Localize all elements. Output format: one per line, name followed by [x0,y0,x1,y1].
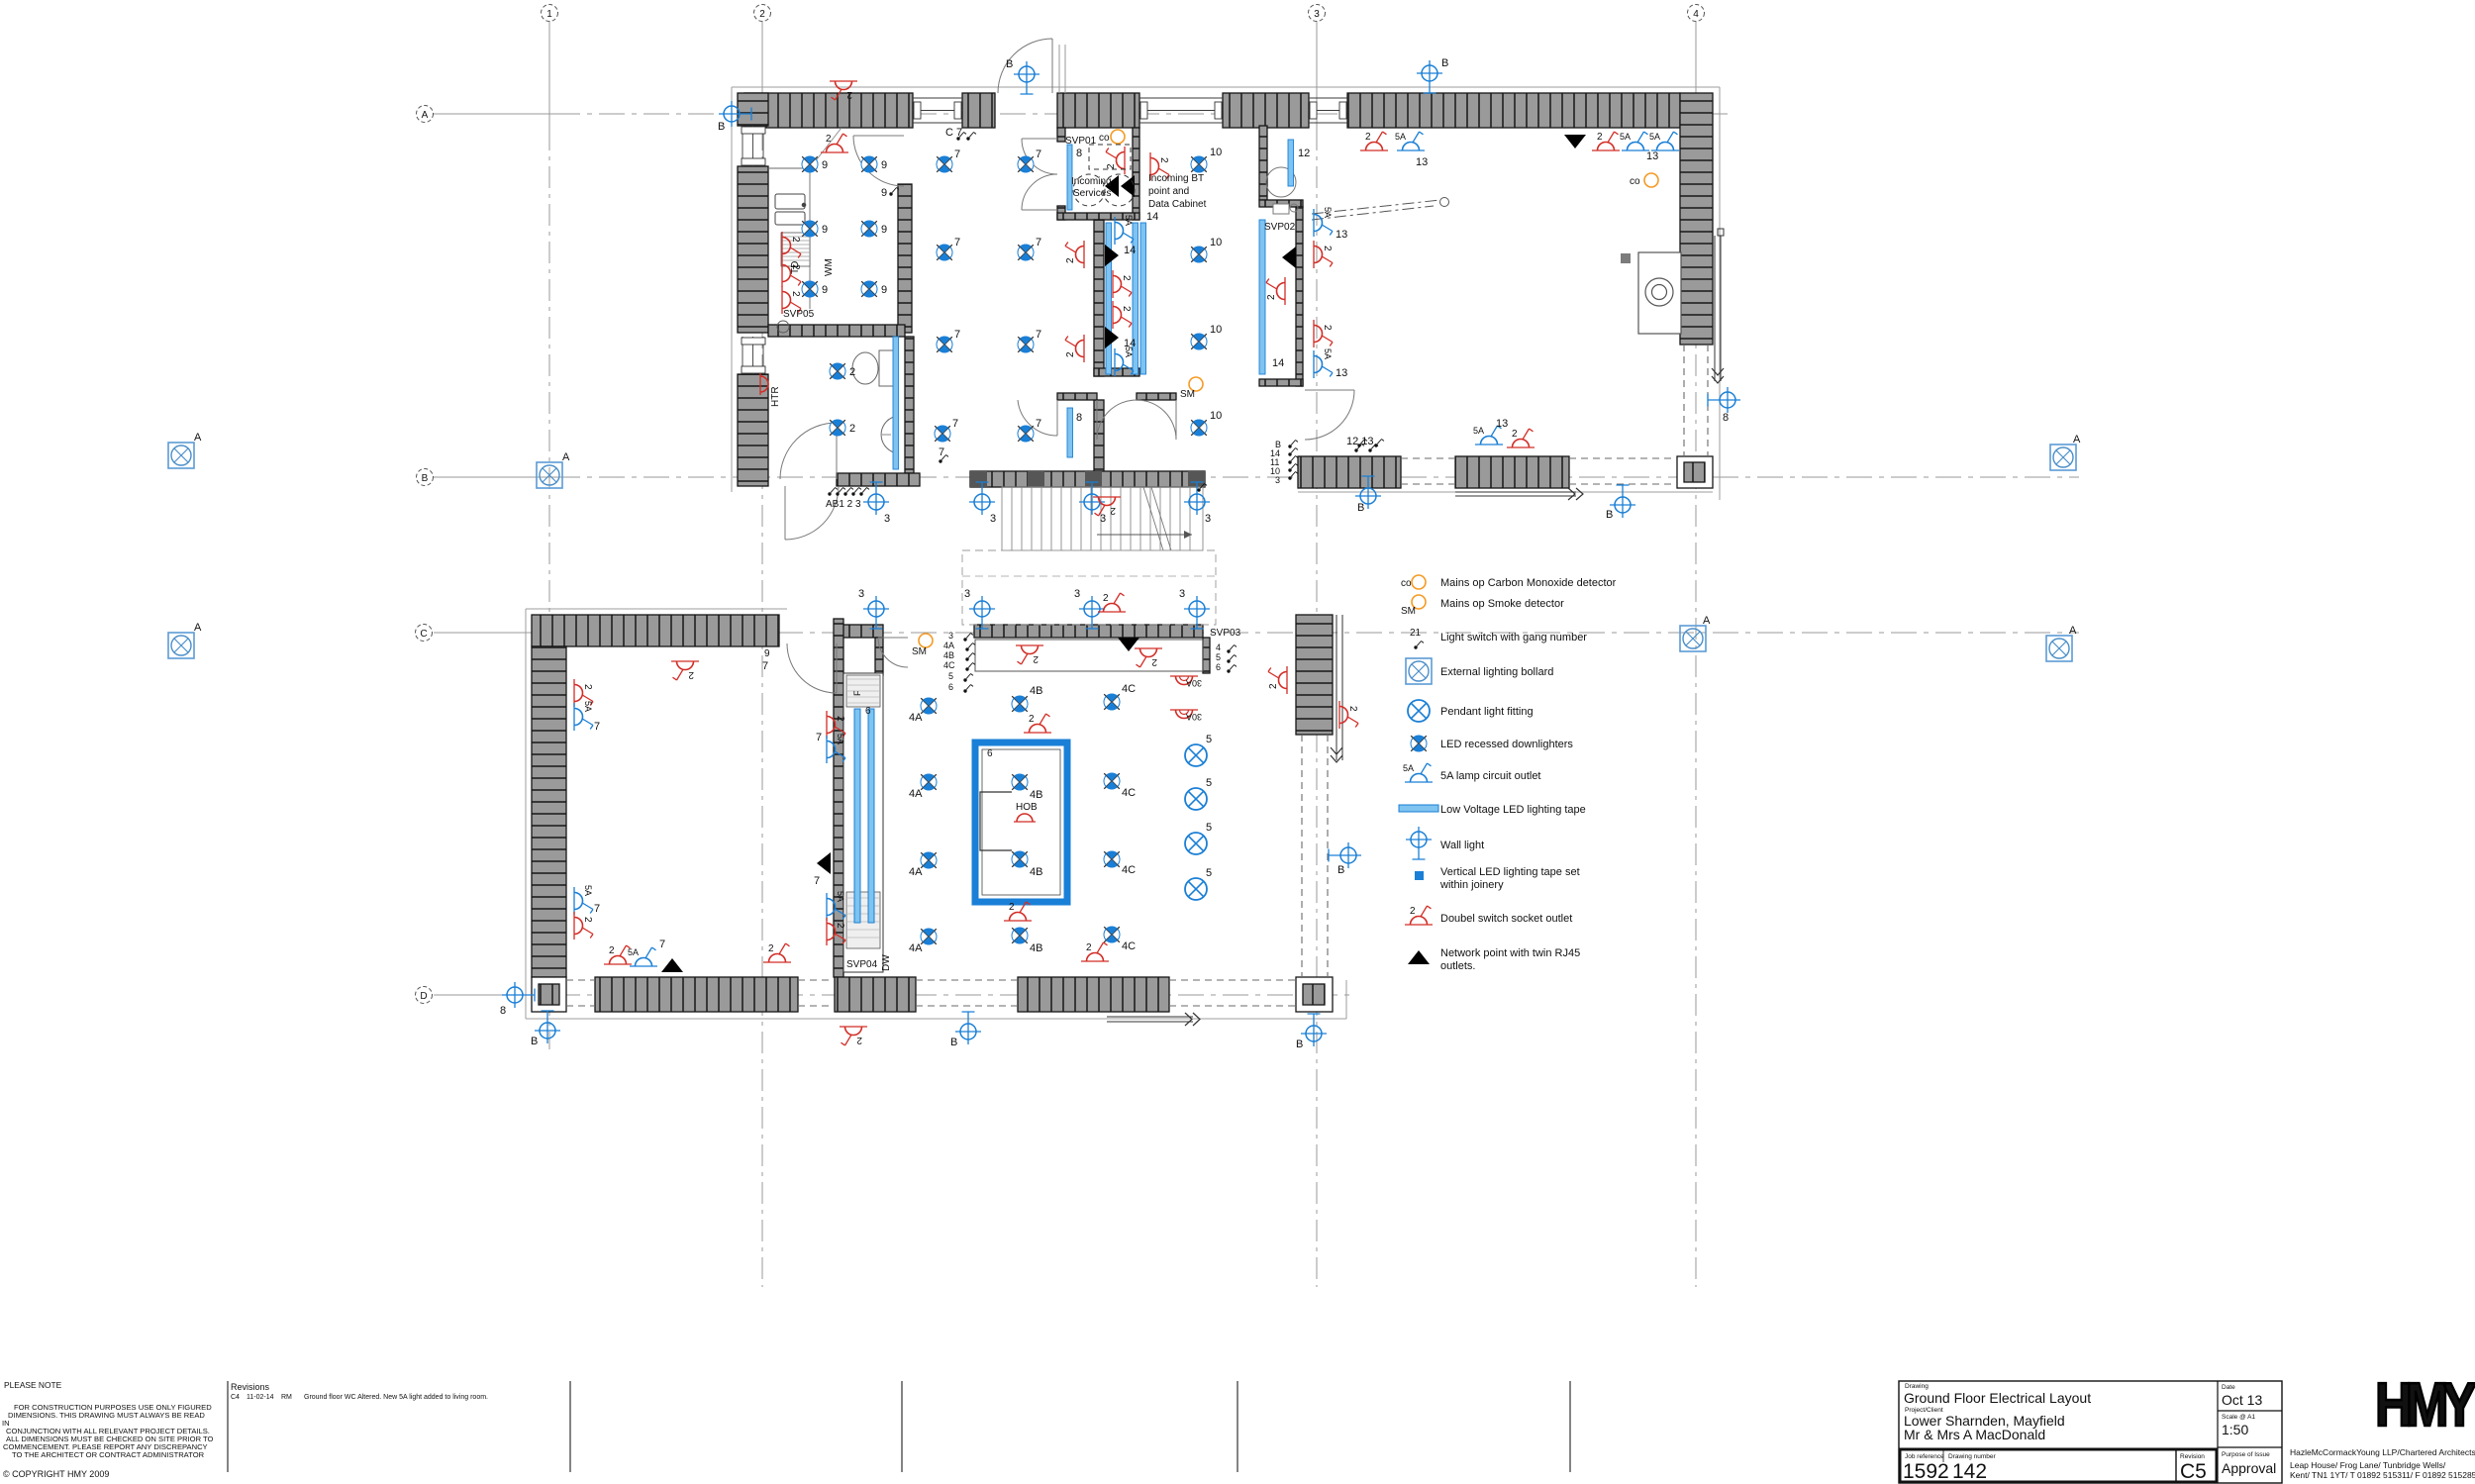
svg-text:8: 8 [1723,412,1729,424]
svg-text:14: 14 [1146,211,1158,223]
svg-text:WM: WM [824,258,835,276]
svg-text:Network point with twin RJ45: Network point with twin RJ45 [1440,947,1580,959]
svg-text:142: 142 [1952,1460,1987,1483]
svg-text:9: 9 [764,648,770,659]
svg-text:1592: 1592 [1903,1460,1949,1483]
svg-text:7: 7 [1036,418,1041,430]
svg-text:4: 4 [1216,643,1221,652]
svg-text:5: 5 [1206,777,1212,789]
svg-text:5: 5 [1206,822,1212,834]
svg-text:A: A [2073,434,2081,445]
svg-text:B: B [1606,509,1613,521]
svg-text:3: 3 [948,631,953,641]
svg-text:4B: 4B [943,650,954,660]
svg-text:Vertical LED lighting tape set: Vertical LED lighting tape set [1440,866,1580,878]
svg-text:1: 1 [546,9,552,20]
svg-text:D: D [420,991,427,1002]
svg-text:9: 9 [881,224,887,236]
svg-text:14: 14 [1272,357,1284,369]
svg-text:4A: 4A [909,788,923,800]
svg-text:3: 3 [858,588,864,600]
svg-text:SVP04: SVP04 [846,959,878,970]
svg-text:B: B [950,1037,957,1048]
svg-text:within joinery: within joinery [1439,879,1504,891]
svg-text:Data Cabinet: Data Cabinet [1148,199,1207,210]
svg-text:2: 2 [849,423,855,435]
svg-text:7: 7 [1036,237,1041,248]
svg-text:Incoming BT: Incoming BT [1148,173,1204,184]
svg-text:co: co [1099,133,1110,144]
svg-text:1:50: 1:50 [2222,1422,2248,1437]
svg-text:HazleMcCormackYoung LLP/Charte: HazleMcCormackYoung LLP/Chartered Archit… [2290,1447,2475,1457]
svg-text:A: A [422,110,429,121]
svg-text:AB1 2 3: AB1 2 3 [826,499,861,510]
svg-text:Job reference: Job reference [1905,1453,1944,1460]
svg-text:4A: 4A [909,942,923,954]
svg-text:9: 9 [881,187,887,199]
svg-text:B: B [422,473,429,484]
svg-text:3: 3 [1179,588,1185,600]
svg-text:21: 21 [1410,628,1422,639]
svg-text:Drawing number: Drawing number [1948,1453,1997,1460]
svg-text:7: 7 [816,732,822,743]
svg-text:Wall light: Wall light [1440,840,1484,851]
svg-text:7: 7 [952,418,958,430]
svg-text:6: 6 [1216,662,1221,672]
svg-text:4C: 4C [1122,864,1136,876]
svg-text:10: 10 [1210,324,1222,336]
svg-text:3: 3 [990,513,996,525]
svg-text:B: B [1006,58,1013,70]
svg-text:3: 3 [1074,588,1080,600]
svg-text:4: 4 [1693,9,1699,20]
svg-text:Low Voltage LED lighting tape: Low Voltage LED lighting tape [1440,804,1586,816]
svg-text:7: 7 [814,875,820,887]
svg-text:B: B [1337,864,1344,876]
svg-text:5: 5 [1216,652,1221,662]
svg-text:Revision: Revision [2180,1453,2205,1460]
svg-text:C4: C4 [231,1394,240,1401]
svg-text:9: 9 [881,284,887,296]
svg-text:© COPYRIGHT HMY 2009: © COPYRIGHT HMY 2009 [3,1469,109,1479]
svg-text:14: 14 [1124,245,1136,256]
svg-text:7: 7 [659,939,665,950]
svg-text:13: 13 [1416,156,1428,168]
svg-text:C 7: C 7 [945,127,962,139]
svg-text:11-02-14: 11-02-14 [247,1394,274,1401]
svg-text:3: 3 [1205,513,1211,525]
svg-text:7: 7 [1036,329,1041,341]
svg-text:SM: SM [1180,389,1195,400]
svg-text:A: A [562,451,570,463]
svg-text:TO THE ARCHITECT OR CONTRACT A: TO THE ARCHITECT OR CONTRACT ADMINISTRAT… [12,1450,205,1459]
svg-text:LED recessed downlighters: LED recessed downlighters [1440,739,1573,750]
svg-text:7: 7 [1036,148,1041,160]
svg-text:6: 6 [865,706,871,717]
svg-text:Date: Date [2222,1384,2235,1391]
svg-text:4C: 4C [1122,683,1136,695]
svg-text:Kent/ TN1 1YT/ T 01892 515311/: Kent/ TN1 1YT/ T 01892 515311/ F 01892 5… [2290,1470,2475,1480]
svg-text:Ground Floor Electrical Layout: Ground Floor Electrical Layout [1904,1390,2091,1406]
svg-text:Mr & Mrs A MacDonald: Mr & Mrs A MacDonald [1904,1427,2045,1442]
svg-text:Doubel switch socket outlet: Doubel switch socket outlet [1440,913,1572,925]
svg-text:10: 10 [1210,410,1222,422]
svg-text:B: B [531,1036,538,1047]
svg-text:5A lamp circuit outlet: 5A lamp circuit outlet [1440,770,1541,782]
svg-text:5: 5 [1206,734,1212,745]
svg-text:10: 10 [1210,147,1222,158]
svg-text:4B: 4B [1030,866,1042,878]
svg-text:4C: 4C [943,660,955,670]
svg-text:5: 5 [948,671,953,681]
svg-text:4A: 4A [943,641,954,650]
svg-text:3: 3 [884,513,890,525]
svg-text:Mains op Carbon Monoxide detec: Mains op Carbon Monoxide detector [1440,577,1617,589]
svg-text:12: 12 [1298,148,1310,159]
svg-text:2: 2 [849,366,855,378]
svg-text:3: 3 [964,588,970,600]
svg-text:Leap House/ Frog Lane/ Tunbrid: Leap House/ Frog Lane/ Tunbridge Wells/ [2290,1460,2446,1470]
svg-text:4B: 4B [1030,942,1042,954]
svg-text:4A: 4A [909,712,923,724]
svg-text:9: 9 [822,224,828,236]
svg-text:7: 7 [594,903,600,915]
svg-text:outlets.: outlets. [1440,960,1475,972]
svg-text:9: 9 [822,159,828,171]
svg-text:SM: SM [912,646,927,657]
svg-text:8: 8 [1076,412,1082,424]
svg-text:HTR: HTR [770,386,781,407]
svg-text:13: 13 [1336,367,1347,379]
svg-text:4B: 4B [1030,685,1042,697]
svg-text:Oct 13: Oct 13 [2222,1392,2262,1408]
svg-text:13: 13 [1646,150,1658,162]
svg-text:6: 6 [948,682,953,692]
svg-text:F: F [852,690,862,696]
svg-text:B: B [718,121,725,133]
svg-text:HOB: HOB [1016,802,1038,813]
svg-text:7: 7 [954,237,960,248]
svg-text:SVP05: SVP05 [783,309,815,320]
svg-text:13: 13 [1336,229,1347,241]
svg-text:HMY: HMY [2375,1371,2475,1439]
svg-text:7: 7 [594,721,600,733]
svg-text:DIMENSIONS. THIS DRAWING MUST: DIMENSIONS. THIS DRAWING MUST ALWAYS BE … [8,1411,205,1420]
svg-text:9: 9 [822,284,828,296]
svg-text:4C: 4C [1122,787,1136,799]
svg-text:Light switch with gang number: Light switch with gang number [1440,632,1587,643]
svg-text:12 13: 12 13 [1346,436,1374,447]
svg-text:SVP03: SVP03 [1210,628,1241,639]
svg-text:RM: RM [281,1394,292,1401]
svg-text:7: 7 [939,446,944,458]
svg-text:External lighting bollard: External lighting bollard [1440,666,1553,678]
svg-text:Drawing: Drawing [1905,1383,1929,1390]
svg-text:9: 9 [881,159,887,171]
svg-text:A: A [1703,615,1711,627]
svg-text:Services: Services [1073,188,1111,199]
svg-text:7: 7 [954,148,960,160]
svg-text:SVP02: SVP02 [1264,222,1296,233]
svg-text:Purpose of Issue: Purpose of Issue [2222,1451,2270,1458]
svg-text:Mains op Smoke detector: Mains op Smoke detector [1440,598,1564,610]
svg-text:6: 6 [987,748,993,759]
svg-text:3: 3 [1275,475,1280,485]
svg-text:Revisions: Revisions [231,1382,270,1392]
svg-text:SM: SM [1401,606,1416,617]
svg-text:A: A [194,432,202,444]
svg-text:4B: 4B [1030,789,1042,801]
svg-text:A: A [2069,625,2077,637]
svg-text:co: co [1630,176,1640,187]
svg-text:C: C [420,629,427,640]
svg-text:PLEASE NOTE: PLEASE NOTE [4,1380,62,1390]
svg-text:Scale @ A1: Scale @ A1 [2222,1414,2255,1421]
svg-text:5: 5 [1206,867,1212,879]
svg-text:3: 3 [1314,9,1320,20]
svg-text:4C: 4C [1122,940,1136,952]
svg-text:3: 3 [1100,513,1106,525]
svg-text:8: 8 [1076,148,1082,159]
svg-text:Pendant light fitting: Pendant light fitting [1440,706,1534,718]
svg-text:Approval: Approval [2222,1460,2276,1476]
svg-text:8: 8 [500,1005,506,1017]
svg-text:TD: TD [790,261,801,274]
svg-text:7: 7 [762,660,768,672]
svg-text:B: B [1441,57,1448,69]
svg-text:2: 2 [759,9,765,20]
svg-text:co: co [1401,578,1412,589]
svg-text:B: B [1296,1039,1303,1050]
svg-text:point and: point and [1148,186,1189,197]
svg-text:14: 14 [1124,338,1136,349]
svg-text:B: B [1357,502,1364,514]
svg-text:4A: 4A [909,866,923,878]
svg-text:7: 7 [954,329,960,341]
svg-text:Ground floor WC Altered. New 5: Ground floor WC Altered. New 5A light ad… [304,1394,488,1401]
svg-text:DW: DW [881,954,892,971]
svg-text:A: A [194,622,202,634]
svg-text:C5: C5 [2180,1460,2207,1483]
svg-text:10: 10 [1210,237,1222,248]
svg-text:13: 13 [1496,418,1508,430]
